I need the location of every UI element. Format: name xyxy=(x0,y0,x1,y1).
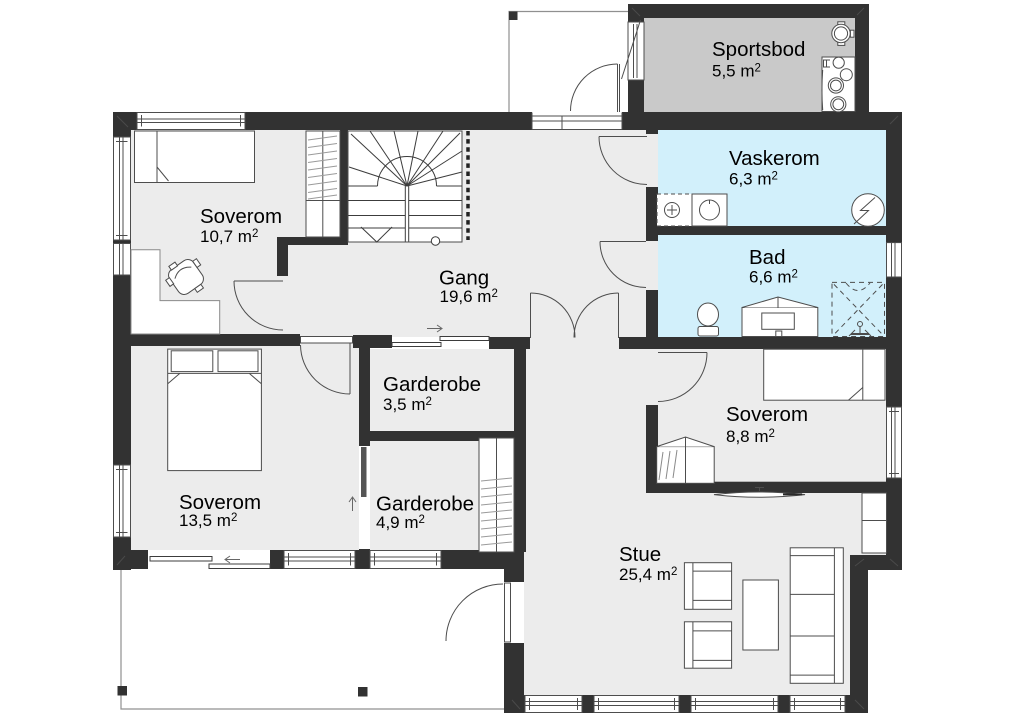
svg-text:Soverom: Soverom xyxy=(726,403,808,426)
svg-text:Vaskerom: Vaskerom xyxy=(729,147,820,170)
svg-text:10,7 m2: 10,7 m2 xyxy=(200,227,258,246)
svg-text:5,5 m2: 5,5 m2 xyxy=(712,62,761,81)
svg-text:4,9 m2: 4,9 m2 xyxy=(376,513,425,532)
svg-text:Garderobe: Garderobe xyxy=(383,373,481,396)
svg-text:3,5 m2: 3,5 m2 xyxy=(383,395,432,414)
svg-text:Stue: Stue xyxy=(619,543,661,566)
svg-text:19,6 m2: 19,6 m2 xyxy=(440,287,498,306)
svg-text:25,4 m2: 25,4 m2 xyxy=(619,565,677,584)
svg-text:8,8 m2: 8,8 m2 xyxy=(726,427,775,446)
svg-text:6,6 m2: 6,6 m2 xyxy=(749,268,798,287)
svg-text:Bad: Bad xyxy=(749,246,785,269)
svg-text:Soverom: Soverom xyxy=(200,205,282,228)
svg-text:Sportsbod: Sportsbod xyxy=(712,38,805,61)
svg-text:13,5 m2: 13,5 m2 xyxy=(179,511,237,530)
svg-text:6,3 m2: 6,3 m2 xyxy=(729,170,778,189)
